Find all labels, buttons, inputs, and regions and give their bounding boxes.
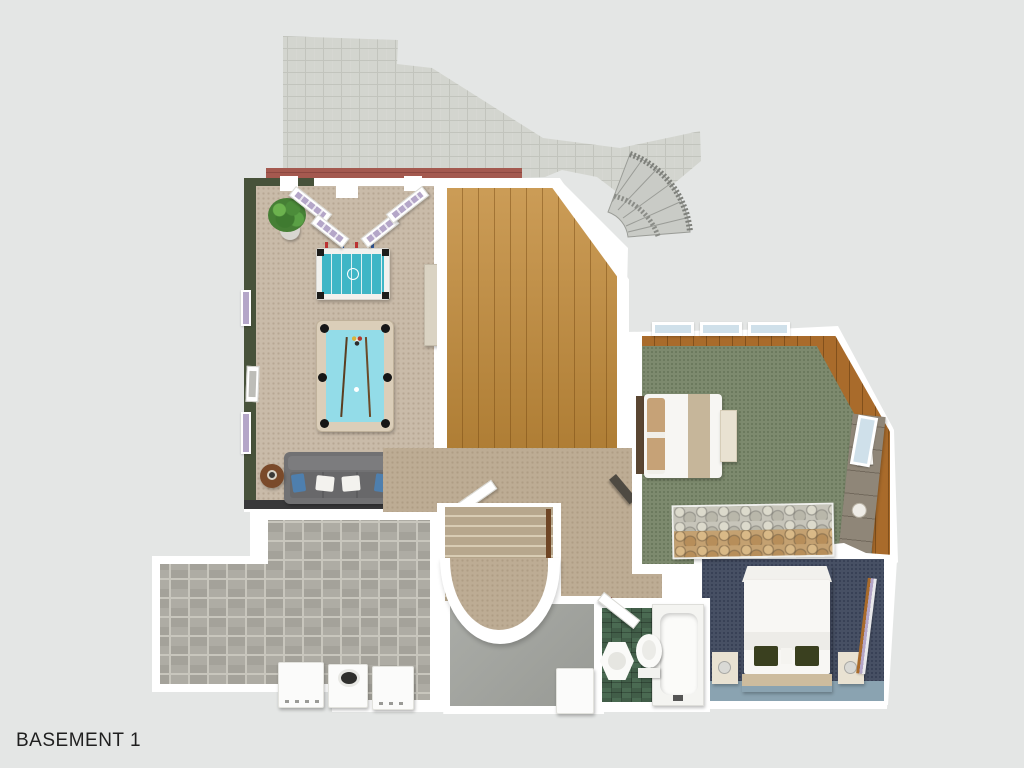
pool-table <box>316 320 394 432</box>
wood-room-floor <box>447 188 617 448</box>
sofa-pillow-white <box>341 475 360 492</box>
foosball-center-circle <box>347 268 359 280</box>
floor-label: BASEMENT 1 <box>16 730 141 752</box>
sink-basin <box>608 652 626 670</box>
top-load-washer <box>328 664 368 708</box>
toilet <box>634 634 664 682</box>
window-glass <box>243 292 249 324</box>
pool-pocket <box>381 419 390 428</box>
stone-wall-top <box>674 505 832 532</box>
foosball-corner-tr <box>382 249 389 256</box>
bedroom-green-window <box>700 322 742 336</box>
game-room-accent-wall-left <box>244 182 256 508</box>
sofa-pillow-blue-left <box>291 473 306 493</box>
pool-cue-ball <box>354 387 359 392</box>
appliance-buttons <box>379 702 409 705</box>
bedroom-green-window <box>652 322 694 336</box>
foosball-corner-bl <box>317 292 324 299</box>
bed-runner <box>688 394 710 478</box>
window-glass <box>655 325 691 333</box>
sofa <box>284 452 396 504</box>
stone-accent-wall <box>672 503 835 560</box>
bed <box>644 394 722 478</box>
bed-pillow-olive <box>795 646 819 666</box>
bedroom-green-window <box>748 322 790 336</box>
nightstand <box>712 652 738 684</box>
pool-pocket <box>320 324 329 333</box>
pool-pocket <box>383 373 392 382</box>
sofa-back <box>288 456 392 470</box>
nightstand-lamp <box>844 661 857 674</box>
stone-wall-face <box>674 529 832 558</box>
floor-plan-scene: BASEMENT 1 <box>0 0 1024 768</box>
bathtub-basin <box>660 613 698 695</box>
toilet-seat <box>642 640 656 660</box>
window-glass <box>243 414 249 452</box>
sofa-pillow-white <box>315 475 334 492</box>
freezer <box>556 668 594 714</box>
washer <box>278 662 324 708</box>
bed-pillows <box>647 398 665 474</box>
washer-lid-ring <box>338 669 360 687</box>
pool-pocket <box>318 373 327 382</box>
bathroom <box>594 598 710 712</box>
window-left-upper <box>241 290 251 326</box>
appliance-buttons <box>285 700 319 703</box>
desk-cup <box>851 502 867 518</box>
side-table <box>260 464 284 488</box>
dryer <box>372 666 414 710</box>
bed-bench <box>720 410 737 462</box>
foosball-corner-tl <box>317 249 324 256</box>
nightstand-lamp <box>718 661 731 674</box>
toilet-tank <box>638 668 660 678</box>
pool-pocket <box>381 324 390 333</box>
bathtub-faucet <box>673 695 683 701</box>
window-glass <box>703 325 739 333</box>
bed-pillow-olive <box>754 646 778 666</box>
table-lamp <box>267 470 277 480</box>
window-glass <box>751 325 787 333</box>
door-jamb <box>336 184 358 198</box>
window-left-lower <box>241 412 251 454</box>
wall-picture <box>245 366 259 402</box>
picture-art <box>249 371 257 397</box>
landing-floor <box>450 558 548 630</box>
pool-ball-rack <box>350 335 364 347</box>
double-bed <box>742 566 832 692</box>
bed-pillow-white <box>781 648 792 664</box>
bed-foot-platform <box>742 674 832 686</box>
foosball-table <box>316 248 390 300</box>
foosball-corner-br <box>382 292 389 299</box>
pool-pocket <box>320 419 329 428</box>
